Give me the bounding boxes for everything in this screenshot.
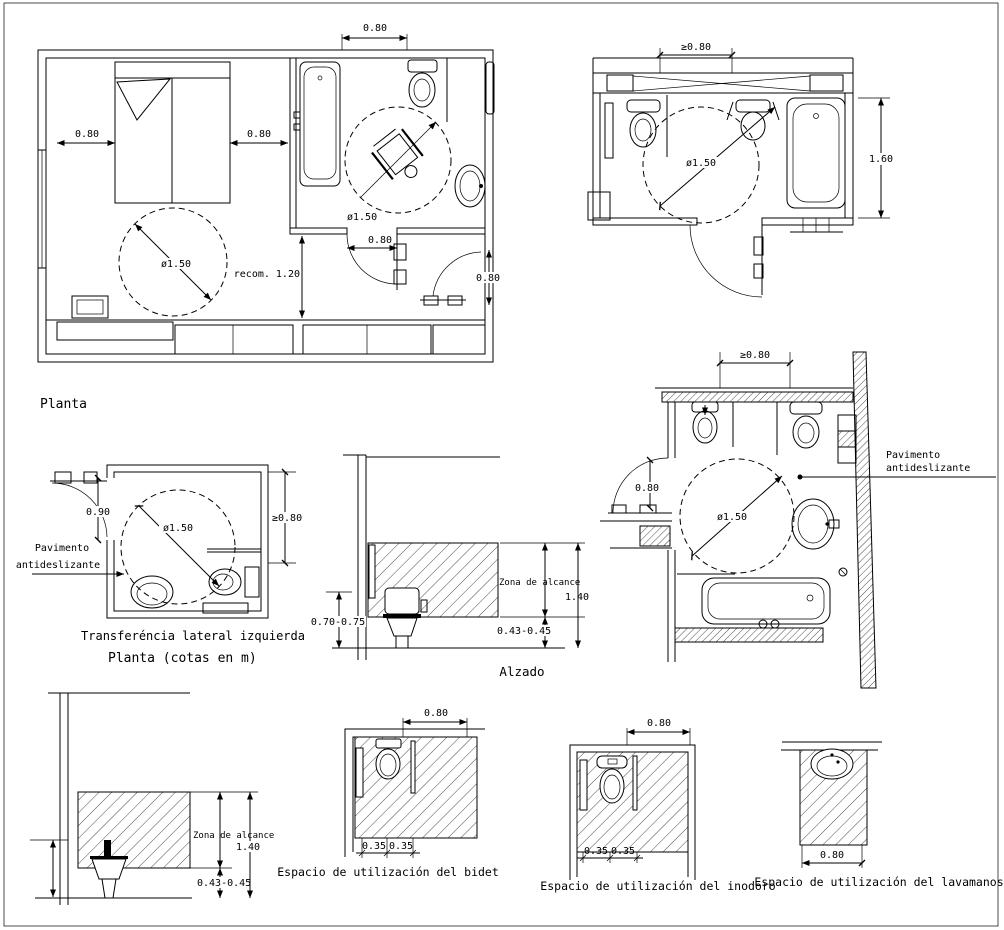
- zone-label: Zona de alcance: [499, 578, 580, 588]
- turning-circle-label: ø1.50: [163, 523, 193, 534]
- floor-label-2: antideslizante: [886, 463, 970, 474]
- dim-top-label: 0.80: [647, 718, 671, 729]
- dim-left-label: 0.70-0.75: [311, 617, 365, 628]
- grab-bar: [605, 103, 613, 158]
- floor-label-1: Pavimento: [886, 450, 940, 461]
- turning-circle: ø1.50: [643, 107, 775, 223]
- dim-seat: 0.43-0.45: [195, 868, 251, 898]
- floor-drain: [839, 568, 847, 576]
- turning-circle: ø1.50: [680, 459, 794, 573]
- wheelchair-icon: [369, 126, 429, 188]
- plan-bathroom-midright: 0.80: [600, 350, 996, 688]
- dim-top-label: 0.80: [363, 23, 387, 34]
- dim-bottom: 0.35 0.35: [577, 846, 643, 863]
- caption: Alzado: [499, 664, 544, 679]
- dim-top-label: 0.80: [424, 708, 448, 719]
- dim-left: 0.80: [57, 129, 115, 143]
- door: [600, 458, 672, 548]
- bathroom-door: 0.80: [347, 234, 406, 290]
- recom-dim: recom. 1.20: [234, 236, 302, 318]
- bottom-wall: [675, 628, 823, 642]
- bath-circle-label: ø1.50: [347, 212, 377, 223]
- bidet: [727, 100, 779, 140]
- diagram-bidet-space: 0.80 0.35 0.35 Espacio de utilización de…: [277, 708, 499, 879]
- cad-sheet: ø1.50: [0, 0, 1004, 930]
- bed: [115, 62, 230, 203]
- door: [690, 225, 763, 297]
- floor-label: Pavimento antideslizante: [16, 543, 124, 574]
- zone-label: Zona de alcance: [193, 831, 274, 841]
- sink: [811, 749, 853, 779]
- entry-door: 0.80: [420, 250, 502, 305]
- dim-door: 0.90: [84, 478, 112, 540]
- dim-bottom-label: 0.80: [820, 850, 844, 861]
- sink: [455, 165, 485, 207]
- dim-seat-label: 0.43-0.45: [497, 626, 551, 637]
- dim-zone: Zona de alcance: [499, 543, 585, 617]
- dim-mid: 0.80: [230, 129, 288, 143]
- dim-height-label: 1.40: [236, 842, 260, 853]
- shelf: [838, 415, 856, 463]
- sink: [131, 576, 173, 608]
- wall-block: [588, 192, 610, 220]
- dim-bottom: 0.80: [802, 845, 862, 868]
- partition-post: [411, 741, 415, 793]
- caption: Espacio de utilización del lavamanos: [754, 875, 1003, 889]
- turning-circle-label: ø1.50: [161, 259, 191, 270]
- floor-label-2: antideslizante: [16, 560, 100, 571]
- dim-right: ≥0.80: [268, 472, 305, 563]
- dim-top-label: ≥0.80: [740, 350, 770, 361]
- sink: [792, 499, 839, 549]
- dim-a-label: 0.35: [584, 846, 608, 857]
- elevation-alzado: Zona de alcance 0.43-0.45 1.40 0.70-0.75…: [310, 455, 589, 679]
- toilet: [408, 58, 447, 122]
- dim-b-label: 0.35: [611, 846, 635, 857]
- right-wall: [853, 352, 876, 688]
- bathtub: [294, 62, 340, 186]
- dim-b-label: 0.35: [389, 841, 413, 852]
- dim-right: 1.60: [858, 98, 896, 218]
- caption: Espacio de utilización del inodoro: [540, 879, 775, 893]
- elevation-bidet-reach: Zona de alcance 0.43-0.45 1.40: [30, 693, 274, 905]
- bathroom-turning-circle: [345, 107, 451, 213]
- bathtub: [702, 578, 830, 628]
- dim-top-label: ≥0.80: [681, 42, 711, 53]
- caption-line2: Planta (cotas en m): [108, 651, 257, 666]
- caption: Espacio de utilización del bidet: [277, 865, 499, 879]
- toilet: [790, 402, 822, 448]
- plan-bedroom-bathroom: ø1.50: [38, 23, 502, 412]
- bathtub: [787, 98, 845, 232]
- toilet: [203, 549, 261, 613]
- plan-caption: Planta: [40, 397, 87, 412]
- recom-label: recom. 1.20: [234, 269, 300, 280]
- dim-left-label: 0.80: [75, 129, 99, 140]
- grab-bar: [580, 760, 587, 810]
- grab-bar: [356, 748, 363, 797]
- diagram-lavamanos-space: 0.80 Espacio de utilización del lavamano…: [754, 742, 1003, 889]
- turning-circle-label: ø1.50: [686, 158, 716, 169]
- dim-height: 1.40: [565, 543, 589, 648]
- dim-height-label: 1.40: [565, 592, 589, 603]
- dim-door-label: 0.90: [86, 507, 110, 518]
- dim-zone: Zona de alcance: [190, 792, 274, 868]
- turning-circle: ø1.50: [119, 208, 227, 316]
- dim-door-label: 0.80: [635, 483, 659, 494]
- table: [72, 296, 108, 318]
- dim-a-label: 0.35: [362, 841, 386, 852]
- dim-mid-label: 0.80: [247, 129, 271, 140]
- dim-top: ≥0.80: [720, 350, 790, 388]
- dim-left: [30, 840, 68, 897]
- partition-post: [633, 756, 637, 810]
- window: [38, 150, 46, 268]
- top-wall: [662, 392, 853, 402]
- bath-door-dim: 0.80: [368, 235, 392, 246]
- dim-top: 0.80: [627, 718, 690, 745]
- turning-circle: ø1.50: [121, 490, 235, 604]
- diagram-inodoro-space: 0.80 0.35 0.35 Espacio de utilización de…: [540, 718, 775, 893]
- dim-seat-label: 0.43-0.45: [197, 878, 251, 889]
- dim-right-label: 1.60: [869, 154, 893, 165]
- dim-bottom: 0.35 0.35: [356, 838, 420, 858]
- cad-drawing: ø1.50: [0, 0, 1004, 930]
- caption-line1: Transferéncia lateral izquierda: [81, 629, 305, 643]
- toilet: [627, 100, 660, 147]
- entry-door-dim: 0.80: [476, 273, 500, 284]
- plan-lateral-transfer: 0.90 ø1.50 ≥0.80: [16, 465, 305, 666]
- bidet: [376, 739, 401, 779]
- dim-seat: 0.43-0.45: [495, 617, 551, 648]
- dim-right-label: ≥0.80: [272, 513, 302, 524]
- plan-accessible-bathroom-topright: ø1.50 ≥0.80 1.60: [588, 42, 896, 297]
- dim-top: 0.80: [342, 23, 407, 50]
- floor-label: Pavimento antideslizante: [798, 450, 997, 480]
- bidet: [692, 402, 718, 443]
- dim-top: 0.80: [403, 708, 467, 737]
- turning-circle-label: ø1.50: [717, 512, 747, 523]
- grab-bar: [369, 545, 375, 598]
- usage-zone: [355, 737, 477, 838]
- floor-label-1: Pavimento: [35, 543, 89, 554]
